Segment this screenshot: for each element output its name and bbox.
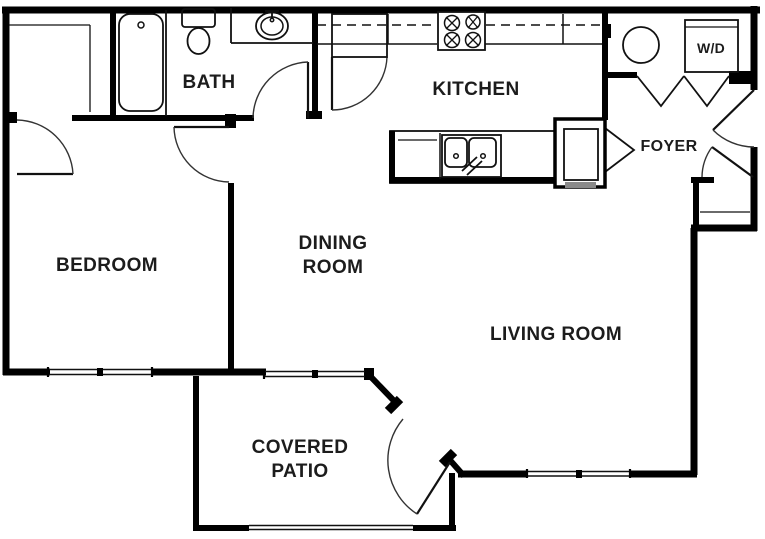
foyer-closet-door-swing [702, 147, 712, 177]
closet-jamb [9, 112, 17, 123]
water-heater [623, 27, 659, 63]
laundry-fixtures [623, 20, 750, 212]
bath-label: BATH [183, 72, 236, 93]
entry-door-leaf [713, 90, 754, 130]
bathroom-sink-drain [270, 18, 273, 21]
washer-dryer-label: W/D [697, 40, 725, 56]
bedroom-window-post [97, 368, 103, 376]
stove [438, 12, 485, 50]
foyer-closet-door-leaf [712, 147, 753, 177]
foyer-corner-stub [729, 71, 757, 84]
bath-door [253, 62, 308, 118]
patio-railing [249, 526, 413, 530]
closet-shelf-line [9, 25, 90, 112]
kitchen-fixtures [317, 12, 605, 188]
dining-window-post [312, 370, 318, 378]
dining-room-label-line1: DINING [299, 233, 368, 254]
floor-plan-page: BEDROOM BATH KITCHEN DINING ROOM LIVING … [0, 0, 765, 539]
kitchen-label: KITCHEN [432, 79, 519, 100]
bathtub [119, 14, 163, 111]
patio-door [388, 419, 450, 514]
kitchen-door-swing [332, 57, 387, 110]
bedroom-door-swing [174, 127, 229, 182]
covered-patio-label-line1: COVERED [252, 437, 349, 458]
patio-door-leaf [417, 462, 450, 514]
pantry-bifold-door [605, 128, 634, 172]
toilet-bowl [188, 28, 210, 54]
bedroom-label: BEDROOM [56, 255, 158, 276]
toilet [182, 9, 215, 54]
living-room-window [527, 469, 630, 478]
dining-room-label-line2: ROOM [303, 257, 364, 278]
covered-patio-label-line2: PATIO [271, 461, 328, 482]
bathroom-sink-inner [261, 17, 283, 35]
refrigerator-shade [565, 182, 596, 188]
living-room-label: LIVING ROOM [490, 324, 622, 345]
entry-door [713, 90, 754, 147]
room-labels: BEDROOM BATH KITCHEN DINING ROOM LIVING … [56, 40, 725, 482]
bedroom-window [48, 367, 152, 377]
bedroom-closet-door [17, 120, 73, 174]
entry-door-swing [713, 130, 754, 147]
refrigerator [555, 119, 605, 188]
bath-door-swing [253, 62, 308, 118]
floor-plan-drawing: BEDROOM BATH KITCHEN DINING ROOM LIVING … [0, 0, 765, 539]
laundry-bifold-doors [637, 76, 729, 106]
bath-fixtures [9, 8, 313, 116]
living-window-post [576, 470, 582, 478]
patio-door-swing [388, 419, 417, 514]
bathtub-drain [138, 22, 144, 28]
kitchen-left-cabinet [332, 14, 387, 57]
foyer-label: FOYER [640, 138, 697, 155]
doors [17, 57, 754, 514]
kitchen-door [332, 57, 387, 110]
dining-window [264, 369, 366, 379]
patio-door-jambs [388, 399, 454, 464]
bedroom-door [174, 127, 229, 182]
foyer-closet-door [702, 147, 753, 177]
bedroom-closet-door-swing [17, 120, 73, 174]
kitchen-island [389, 131, 555, 183]
interior-walls [72, 7, 714, 531]
laundry-wall-jamb [602, 24, 611, 38]
